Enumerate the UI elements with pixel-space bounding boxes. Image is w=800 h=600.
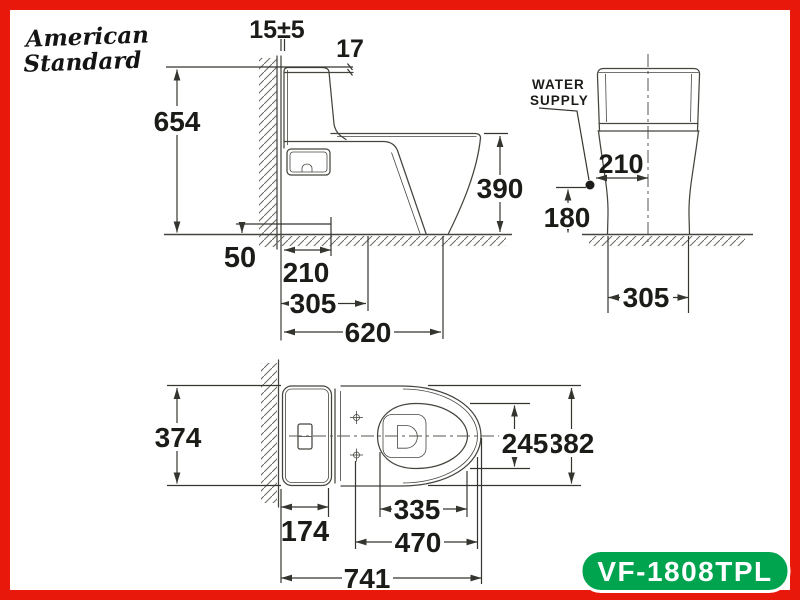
dim-245-label: 245	[502, 428, 549, 459]
dim-210-side-label: 210	[283, 257, 330, 288]
dim-210-rear-label: 210	[598, 149, 643, 179]
dim-180-label: 180	[544, 202, 591, 233]
dim-741-label: 741	[344, 563, 391, 594]
water-supply-point-icon	[586, 181, 595, 190]
dim-305-side-label: 305	[290, 288, 337, 319]
technical-drawing: 654 15±5 17 390 50 210 305	[0, 0, 800, 600]
water-supply-label-2: SUPPLY	[530, 93, 589, 108]
dim-654-label: 654	[154, 106, 201, 137]
dim-470-label: 470	[395, 527, 442, 558]
dim-620-label: 620	[345, 317, 392, 348]
dim-rear-supply-offset: 210	[596, 149, 648, 179]
brand-logo: American Standard	[22, 21, 150, 77]
dim-382-label: 382	[548, 428, 595, 459]
dim-335-label: 335	[394, 494, 441, 525]
water-supply-label-1: WATER	[532, 77, 585, 92]
dim-305-rear-label: 305	[623, 282, 670, 313]
dim-side-supply-height: 50	[224, 242, 256, 274]
logo-line-2: Standard	[23, 47, 142, 78]
spec-sheet-page: 654 15±5 17 390 50 210 305	[0, 0, 800, 600]
model-badge: VF-1808TPL	[581, 551, 789, 592]
dim-390-label: 390	[477, 173, 524, 204]
dim-17-label: 17	[336, 35, 364, 63]
dim-15-5-label: 15±5	[249, 16, 305, 44]
model-badge-label: VF-1808TPL	[597, 556, 772, 587]
dim-50-label: 50	[224, 242, 256, 274]
dim-374-label: 374	[155, 422, 202, 453]
dim-174-label: 174	[281, 516, 329, 548]
